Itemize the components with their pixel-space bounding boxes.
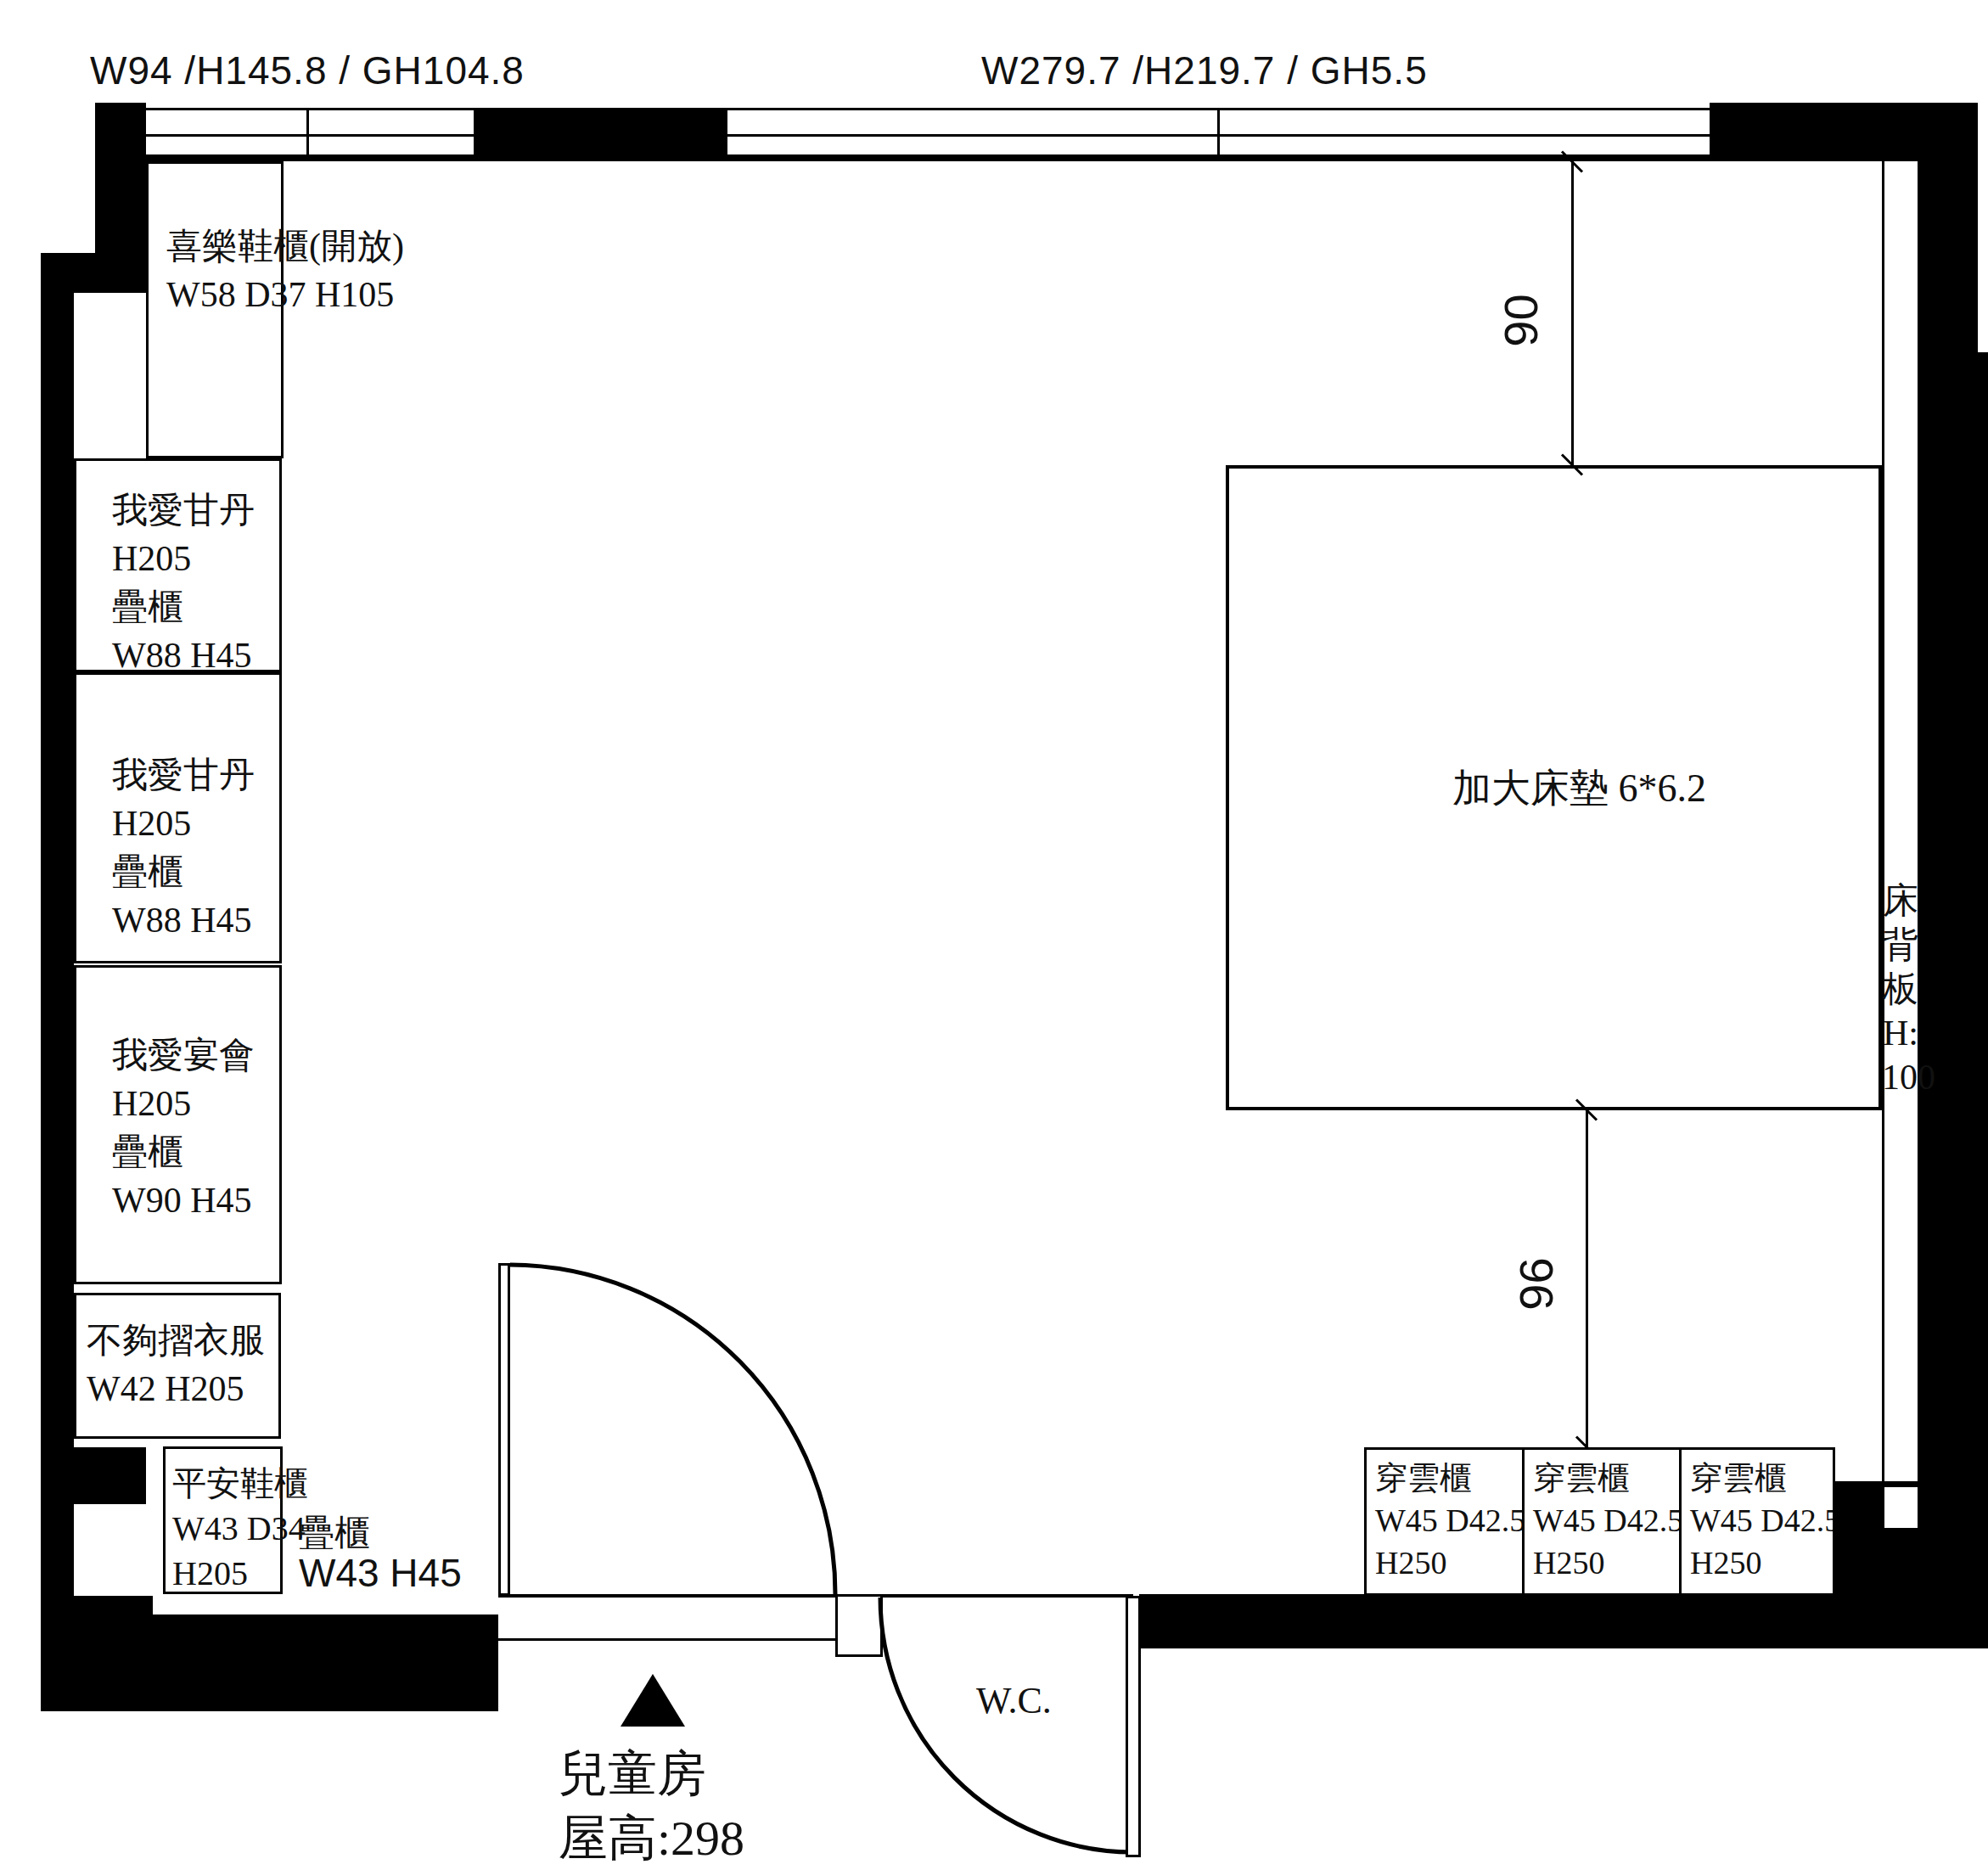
headboard-char: 100: [1882, 1055, 1919, 1099]
label-line: W45 D42.5: [1690, 1499, 1833, 1541]
label-line: 我愛甘丹: [112, 486, 279, 535]
label-line: 穿雲櫃: [1690, 1457, 1833, 1499]
label-line: H205: [112, 800, 279, 848]
window-center-divider: [1217, 110, 1220, 154]
label-line: 不夠摺衣服: [87, 1317, 278, 1365]
room-title: 兒童房 屋高:298: [559, 1742, 744, 1870]
door-leaf: [498, 1263, 510, 1596]
label-line: H250: [1533, 1541, 1679, 1584]
wall-corner-top-right: [1710, 103, 1978, 161]
door-swing-arc: [510, 1265, 837, 1596]
cabinet-box-chuanyun-1: 穿雲櫃 W45 D42.5 H250: [1364, 1447, 1525, 1596]
dimension-value-90: 90: [1493, 294, 1548, 346]
headboard-char: 背: [1882, 923, 1919, 967]
window-left-divider: [306, 110, 309, 154]
wall-top-middle-segment: [474, 108, 727, 161]
bed-label: 加大床墊 6*6.2: [1226, 762, 1882, 815]
dimension-line-96: [1586, 1110, 1588, 1447]
label-line: W45 D42.5: [1533, 1499, 1679, 1541]
label-line: 我愛宴會: [112, 1031, 279, 1080]
entrance-triangle-icon: [621, 1674, 685, 1727]
wall-bottom-right: [1139, 1594, 1988, 1648]
wall-left-step-top: [41, 253, 146, 293]
label-line: 疊櫃: [112, 1128, 279, 1176]
wall-right-upper: [1918, 161, 1978, 352]
wc-label: W.C.: [976, 1679, 1052, 1722]
cabinet-box-chuanyun-3: 穿雲櫃 W45 D42.5 H250: [1679, 1447, 1835, 1596]
label-line: 疊櫃: [112, 583, 279, 632]
cabinet-label-shoe-open: 喜樂鞋櫃(開放) W58 D37 H105: [166, 222, 404, 319]
window-left-midline: [146, 134, 474, 137]
window-left: [146, 108, 474, 161]
window-dimension-label-center: W279.7 /H219.7 / GH5.5: [981, 48, 1428, 93]
label-line: 喜樂鞋櫃(開放): [166, 222, 404, 271]
room-ceiling-height: 屋高:298: [559, 1806, 744, 1870]
dimension-line-90: [1571, 161, 1574, 465]
stack-cabinet-size: W43 H45: [299, 1550, 462, 1596]
label-line: W58 D37 H105: [166, 271, 404, 319]
wall-left: [41, 293, 74, 1711]
room-name: 兒童房: [559, 1742, 744, 1806]
cabinet-box-gandan-2: 我愛甘丹 H205 疊櫃 W88 H45: [74, 672, 282, 963]
label-line: H205: [172, 1551, 280, 1596]
label-line: 穿雲櫃: [1375, 1457, 1522, 1499]
wall-right-lower: [1918, 352, 1988, 1596]
cabinet-box-gandan-1: 我愛甘丹 H205 疊櫃 W88 H45: [74, 458, 282, 672]
label-line: 疊櫃: [112, 848, 279, 896]
label-line: 平安鞋櫃: [172, 1461, 280, 1506]
wall-bottom-left: [41, 1614, 498, 1711]
window-dimension-label-left: W94 /H145.8 / GH104.8: [90, 48, 525, 93]
floor-plan: W94 /H145.8 / GH104.8 W279.7 /H219.7 / G…: [0, 0, 1988, 1870]
cabinet-box-pingan: 平安鞋櫃 W43 D34 H205: [163, 1446, 283, 1594]
label-line: W45 D42.5: [1375, 1499, 1522, 1541]
label-line: H250: [1375, 1541, 1522, 1584]
label-line: H250: [1690, 1541, 1833, 1584]
door-threshold-bottom-line: [498, 1638, 880, 1641]
wall-pier-between-doors: [835, 1594, 883, 1657]
dimension-value-96: 96: [1508, 1257, 1564, 1310]
cabinet-box-folding: 不夠摺衣服 W42 H205: [74, 1293, 281, 1439]
cabinet-box-banquet: 我愛宴會 H205 疊櫃 W90 H45: [74, 965, 282, 1284]
cabinet-box-chuanyun-2: 穿雲櫃 W45 D42.5 H250: [1522, 1447, 1682, 1596]
wall-niche: [1882, 1487, 1918, 1528]
headboard-char: H:: [1882, 1011, 1919, 1055]
headboard-char: 床: [1882, 879, 1919, 923]
label-line: 穿雲櫃: [1533, 1457, 1679, 1499]
headboard-label: 床 背 板 H: 100: [1882, 879, 1919, 1099]
wc-door-swing-arc: [880, 1598, 1133, 1852]
wc-door-leaf: [1126, 1596, 1141, 1857]
label-line: 我愛甘丹: [112, 751, 279, 800]
label-line: W88 H45: [112, 896, 279, 945]
label-line: W43 D34: [172, 1506, 280, 1551]
label-line: H205: [112, 535, 279, 583]
label-line: H205: [112, 1080, 279, 1128]
headboard-char: 板: [1882, 967, 1919, 1011]
label-line: W90 H45: [112, 1176, 279, 1225]
wall-left-step-bottom: [74, 1447, 146, 1504]
label-line: W42 H205: [87, 1365, 278, 1413]
